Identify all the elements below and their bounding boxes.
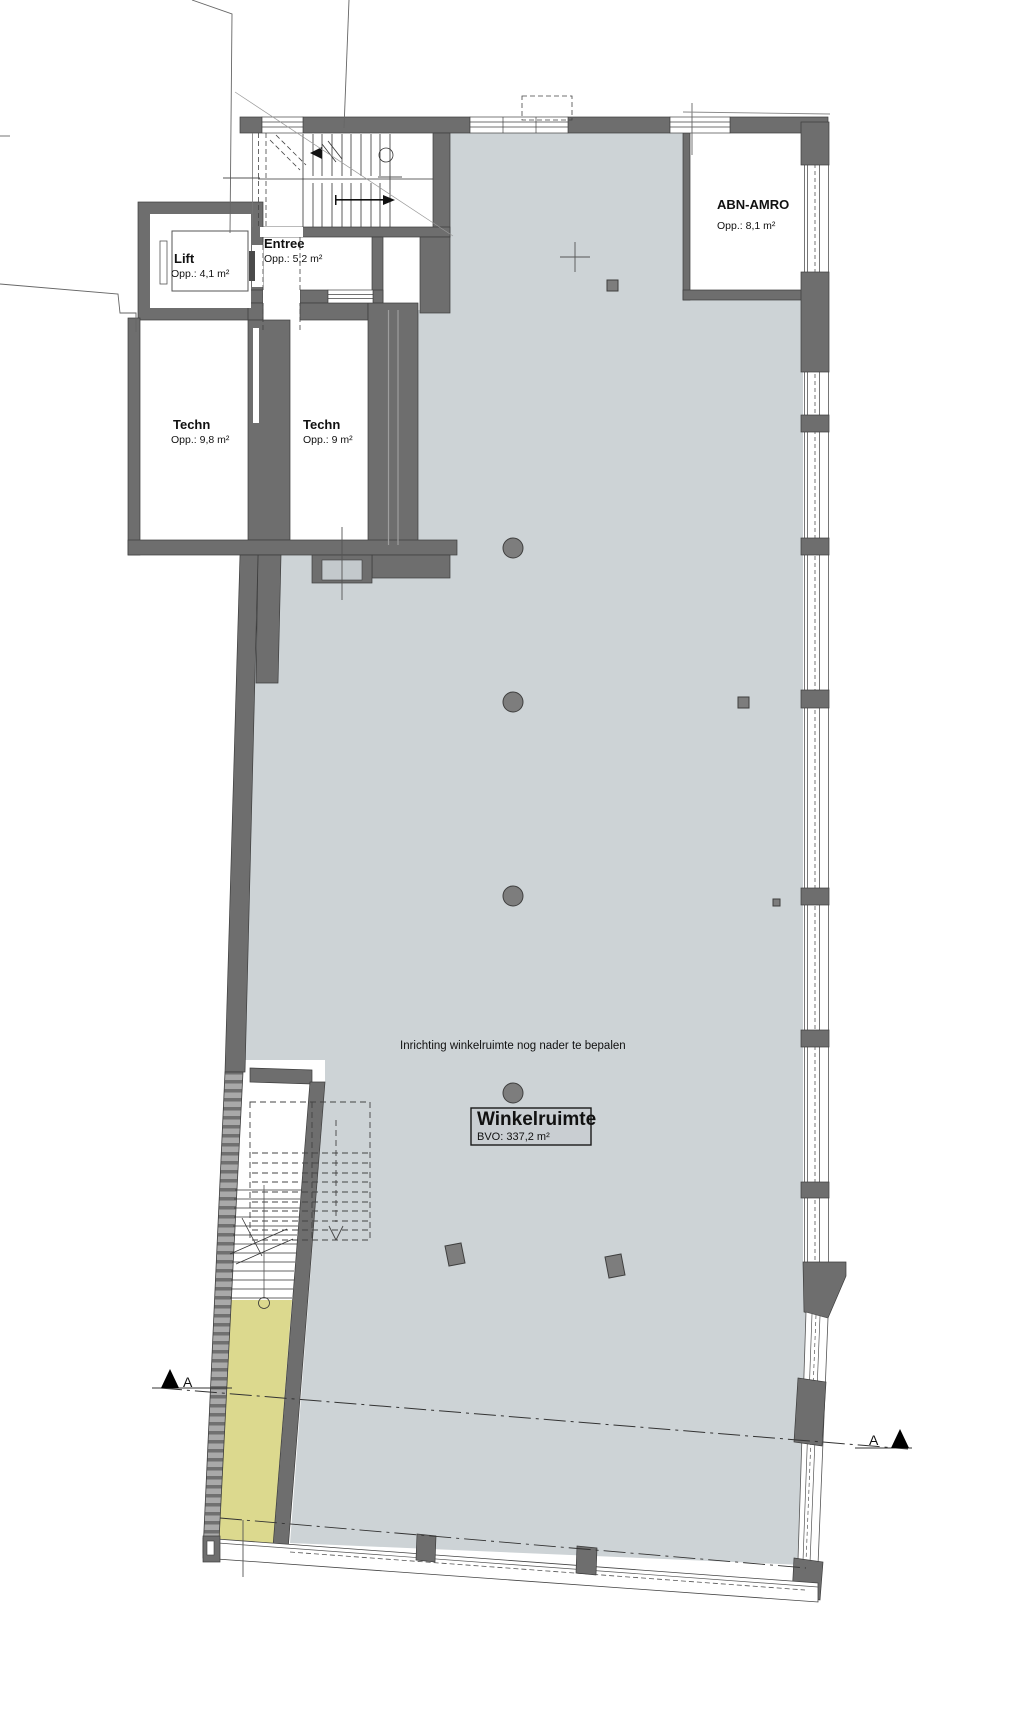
wall-top-1 — [240, 117, 262, 133]
lift-name: Lift — [174, 251, 195, 266]
entree-door-gap — [263, 290, 300, 303]
wall-entree-bottom-c — [373, 290, 383, 303]
square-column-2 — [738, 697, 749, 708]
window-top-3 — [670, 117, 730, 133]
wall-stub-right — [420, 237, 450, 313]
wall-stairwell-right — [433, 133, 450, 237]
canopy-line-topright — [683, 112, 830, 114]
lift-detail — [150, 214, 263, 308]
wall-techn-left — [128, 318, 140, 555]
wall-techn-right — [368, 303, 418, 555]
canopy-dashed-box — [522, 96, 572, 120]
section-label-left: A — [183, 1374, 193, 1390]
round-column-2 — [503, 692, 523, 712]
pier-column-2 — [605, 1254, 625, 1278]
square-column-1 — [607, 280, 618, 291]
wall-left-pier — [256, 555, 281, 683]
entree-area: Opp.: 5,2 m² — [264, 253, 323, 265]
techn-right-area: Opp.: 9 m² — [303, 434, 353, 446]
window-top-2 — [470, 117, 568, 133]
pier-column-1 — [445, 1243, 465, 1266]
floorplan-page: A A Lift Opp.: 4,1 m² Entree Opp.: 5,2 m… — [0, 0, 1021, 1722]
section-label-right: A — [869, 1432, 879, 1448]
techn-left-name: Techn — [173, 417, 210, 432]
wall-techn2-top-b — [300, 303, 368, 320]
section-arrow-left — [161, 1369, 179, 1388]
wall-techn-bottom-ext — [372, 555, 450, 578]
entree-name: Entree — [264, 236, 304, 251]
entree-window — [328, 290, 373, 303]
section-arrow-right — [891, 1429, 909, 1448]
lift-rail — [160, 241, 167, 284]
round-column-1 — [503, 538, 523, 558]
wall-techn-bottom — [128, 540, 457, 555]
wall-entree-bottom-b — [300, 290, 328, 303]
window-top-1 — [262, 117, 303, 133]
winkelruimte-label-box: Winkelruimte BVO: 337,2 m² — [471, 1108, 596, 1145]
winkelruimte-area: BVO: 337,2 m² — [477, 1131, 550, 1143]
inrichting-note: Inrichting winkelruimte nog nader te bep… — [400, 1040, 626, 1052]
wall-stair-enclosure-top — [250, 1068, 312, 1084]
techn-right-name: Techn — [303, 417, 340, 432]
wall-abn-bottom — [683, 290, 805, 300]
ref-line-topcenter — [344, 0, 349, 128]
round-column-3 — [503, 886, 523, 906]
stairwell-top-interior — [248, 128, 433, 232]
floorplan-drawing: A A Lift Opp.: 4,1 m² Entree Opp.: 5,2 m… — [0, 0, 1021, 1722]
square-column-3 — [773, 899, 780, 906]
winkelruimte-name: Winkelruimte — [477, 1109, 596, 1130]
wall-top-2 — [303, 117, 470, 133]
wall-abn-left — [683, 133, 690, 300]
abn-amro-area: Opp.: 8,1 m² — [717, 220, 776, 232]
lift-door-leaf — [249, 251, 255, 281]
lift-area: Opp.: 4,1 m² — [171, 268, 230, 280]
techn-left-area: Opp.: 9,8 m² — [171, 434, 230, 446]
property-line-left — [0, 284, 136, 332]
wall-top-3 — [568, 117, 670, 133]
round-column-4 — [503, 1083, 523, 1103]
property-line-top — [192, 0, 232, 233]
abn-amro-name: ABN-AMRO — [717, 197, 789, 212]
